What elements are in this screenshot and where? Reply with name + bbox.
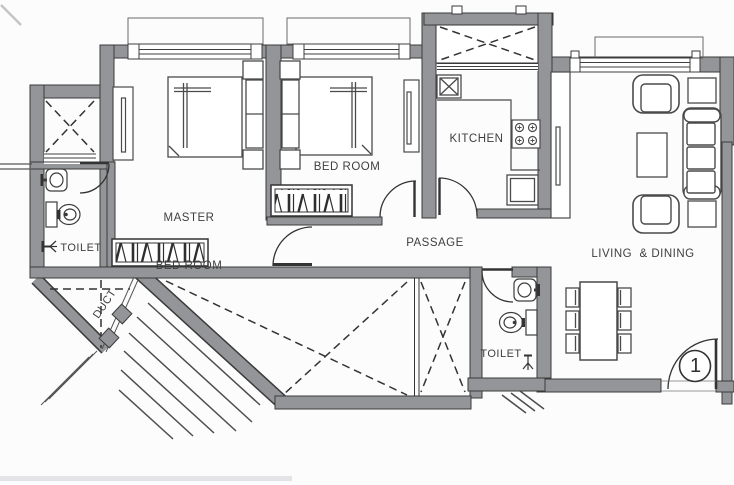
bedroom-cabinet <box>404 80 419 152</box>
toilet-right-fixtures <box>500 279 541 335</box>
pipe-lines <box>0 164 32 169</box>
side-table <box>688 78 716 103</box>
kitchen-sink <box>437 75 461 98</box>
sofa <box>683 108 721 199</box>
toilet-left-fixtures <box>41 169 81 227</box>
dining-set <box>566 282 631 360</box>
room-label-bedroom: BED ROOM <box>303 159 391 175</box>
room-label-master-bedroom: MASTER BED ROOM <box>140 178 238 290</box>
side-table <box>688 201 716 227</box>
coffee-table <box>637 133 667 177</box>
kitchen-platform <box>507 175 538 205</box>
room-label-master-line2: BED ROOM <box>140 258 238 274</box>
wardrobe-bedroom <box>271 185 352 216</box>
floor-plan-drawing <box>0 0 734 485</box>
entry-door-number: 1 <box>686 353 705 379</box>
master-bed <box>168 61 263 169</box>
shower-icon <box>42 241 58 252</box>
bedroom-bed <box>280 61 372 169</box>
floor-plan: MASTER BED ROOM BED ROOM KITCHEN PASSAGE… <box>0 0 734 485</box>
room-label-master-line1: MASTER <box>140 210 238 226</box>
room-label-living-dining: LIVING & DINING <box>560 246 726 262</box>
master-wardrobe-tall <box>113 87 133 160</box>
room-label-toilet-right: TOILET <box>477 346 525 362</box>
room-label-passage: PASSAGE <box>387 235 483 251</box>
room-label-kitchen: KITCHEN <box>429 131 524 147</box>
living-cabinet <box>551 72 570 218</box>
armchair <box>633 75 679 113</box>
armchair <box>633 195 679 233</box>
room-label-toilet-left: TOILET <box>57 240 105 256</box>
